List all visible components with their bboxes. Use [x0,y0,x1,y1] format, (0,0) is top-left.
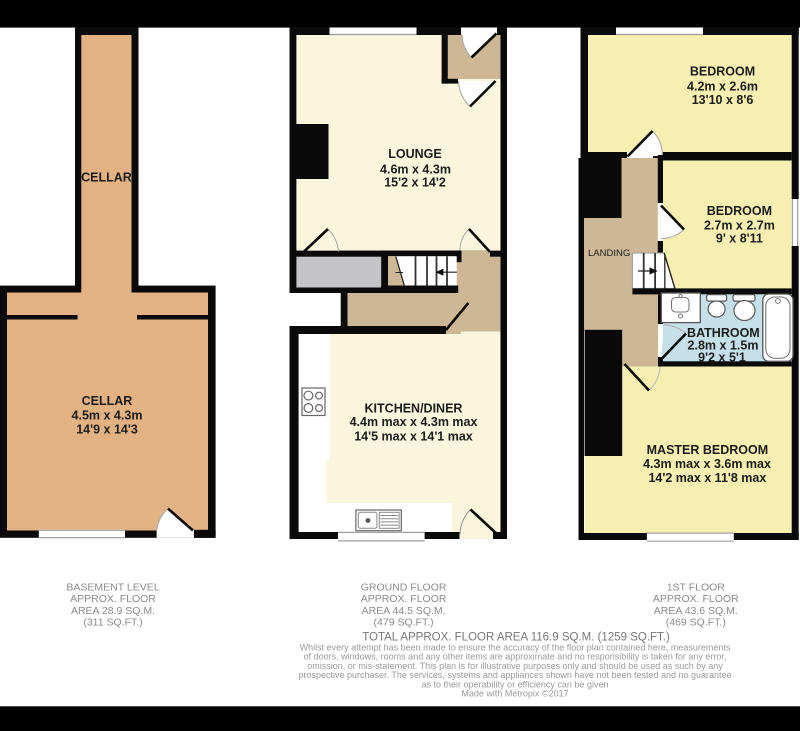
svg-text:4.2m x 2.6m: 4.2m x 2.6m [687,80,758,94]
svg-text:15'2 x 14'2: 15'2 x 14'2 [384,176,446,190]
svg-text:9' x 8'11: 9' x 8'11 [716,231,763,245]
svg-text:LANDING: LANDING [588,248,630,259]
svg-text:(479 SQ.FT.): (479 SQ.FT.) [374,617,434,629]
svg-text:KITCHEN/DINER: KITCHEN/DINER [365,402,463,416]
svg-text:LOUNGE: LOUNGE [388,147,441,161]
svg-text:4.3m max x 3.6m max: 4.3m max x 3.6m max [643,457,771,471]
svg-text:(311 SQ.FT.): (311 SQ.FT.) [83,617,142,629]
svg-text:APPROX. FLOOR: APPROX. FLOOR [70,593,156,605]
svg-text:APPROX. FLOOR: APPROX. FLOOR [653,593,739,605]
svg-text:APPROX. FLOOR: APPROX. FLOOR [361,593,447,605]
svg-text:CELLAR: CELLAR [81,171,132,185]
svg-text:GROUND FLOOR: GROUND FLOOR [361,582,447,594]
svg-text:4.4m max x 4.3m max: 4.4m max x 4.3m max [350,415,478,429]
svg-text:9'2 x 5'1: 9'2 x 5'1 [698,350,746,364]
svg-text:14'2 max x 11'8 max: 14'2 max x 11'8 max [648,471,766,485]
svg-text:Made with Metropix ©2017: Made with Metropix ©2017 [461,689,568,699]
svg-text:14'9 x 14'3: 14'9 x 14'3 [76,423,138,437]
svg-text:AREA 44.5 SQ.M.: AREA 44.5 SQ.M. [362,605,446,617]
svg-text:CELLAR: CELLAR [82,394,133,408]
svg-text:2.7m x 2.7m: 2.7m x 2.7m [704,218,775,232]
svg-text:1ST FLOOR: 1ST FLOOR [667,582,726,594]
svg-text:MASTER BEDROOM: MASTER BEDROOM [647,443,769,457]
svg-text:BASEMENT LEVEL: BASEMENT LEVEL [66,582,159,594]
svg-text:(469 SQ.FT.): (469 SQ.FT.) [666,617,726,629]
svg-text:AREA 43.6 SQ.M.: AREA 43.6 SQ.M. [654,605,738,617]
svg-text:4.5m x 4.3m: 4.5m x 4.3m [72,409,143,423]
svg-text:4.6m x 4.3m: 4.6m x 4.3m [380,163,451,177]
svg-text:BEDROOM: BEDROOM [707,204,772,218]
svg-text:AREA 28.9 SQ.M.: AREA 28.9 SQ.M. [71,605,155,617]
svg-text:14'5 max x 14'1 max: 14'5 max x 14'1 max [354,430,473,444]
svg-text:BEDROOM: BEDROOM [690,65,755,79]
svg-text:13'10 x 8'6: 13'10 x 8'6 [692,93,754,107]
